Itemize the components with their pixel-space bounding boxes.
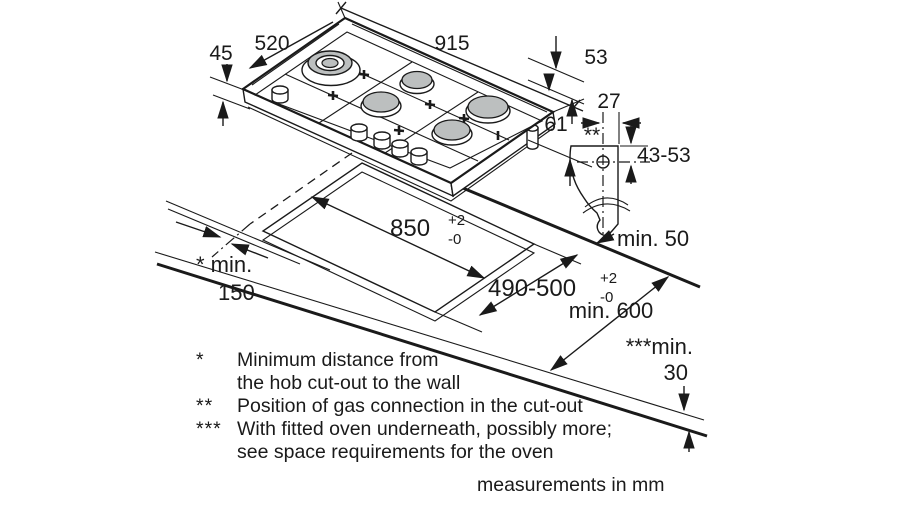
footnotes: * Minimum distance from the hob cut-out … <box>196 349 612 464</box>
footnote-text: With fitted oven underneath, possibly mo… <box>237 418 612 464</box>
knob <box>392 140 408 157</box>
footnote-marker: ** <box>196 395 237 418</box>
cutout-depth-tol-plus: +2 <box>600 270 617 287</box>
oven-clearance-label-2: 30 <box>664 360 688 385</box>
dimension-rear-clearance: min. 50 <box>597 226 689 251</box>
knob <box>374 132 390 149</box>
gas-marker-label: ** <box>584 124 600 147</box>
footnote-text: Position of gas connection in the cut-ou… <box>237 395 583 418</box>
cutout-length-tol-plus: +2 <box>448 212 465 229</box>
footnote-wall-distance: * Minimum distance from the hob cut-out … <box>196 349 612 395</box>
hob-profile-section <box>570 146 618 235</box>
footnote-marker: *** <box>196 418 237 441</box>
dimension-gas-offset: 27 <box>581 90 641 123</box>
installation-diagram: 850 +2 -0 490-500 +2 -0 * min. 150 min. … <box>0 0 900 506</box>
gas-height-label: 43-53 <box>637 144 691 167</box>
knob <box>351 124 367 141</box>
cutout-depth-label: 490-500 <box>488 275 576 302</box>
hob-height-right-label: 53 <box>584 46 607 69</box>
dimension-hob-height: 45 <box>209 42 250 126</box>
burner-front-middle <box>361 92 401 117</box>
dimension-wall-clearance: * min. 150 <box>176 222 268 305</box>
burner-rear-middle <box>400 72 434 94</box>
hob-width-label: 915 <box>434 32 469 55</box>
burner-right-rear <box>466 96 510 123</box>
oven-clearance-label-1: ***min. <box>626 334 693 359</box>
footnote-marker: * <box>196 349 237 372</box>
hob-depth-label: 520 <box>254 32 289 55</box>
footnote-text: Minimum distance from the hob cut-out to… <box>237 349 460 395</box>
footnote-gas-position: ** Position of gas connection in the cut… <box>196 395 612 418</box>
units-note: measurements in mm <box>477 474 664 497</box>
wall-clearance-label-1: * min. <box>196 252 252 277</box>
gas-offset-label: 27 <box>597 90 620 113</box>
rear-clearance-label: min. 50 <box>617 226 689 251</box>
worktop-depth-label: min. 600 <box>569 298 653 323</box>
cutout-length-tol-minus: -0 <box>448 231 461 248</box>
knob <box>272 86 288 103</box>
depth-below-label: 61 <box>544 113 567 136</box>
footnote-oven-underneath: *** With fitted oven underneath, possibl… <box>196 418 612 464</box>
dimension-gas-height: 43-53 <box>620 126 691 184</box>
dimension-oven-clearance: ***min. 30 <box>626 334 693 452</box>
cutout-length-label: 850 <box>390 215 430 242</box>
hob-height-label: 45 <box>209 42 232 65</box>
burner-right-front <box>432 120 472 145</box>
wall-clearance-label-2: 150 <box>218 280 255 305</box>
break-line <box>585 198 628 207</box>
knob <box>411 148 427 165</box>
